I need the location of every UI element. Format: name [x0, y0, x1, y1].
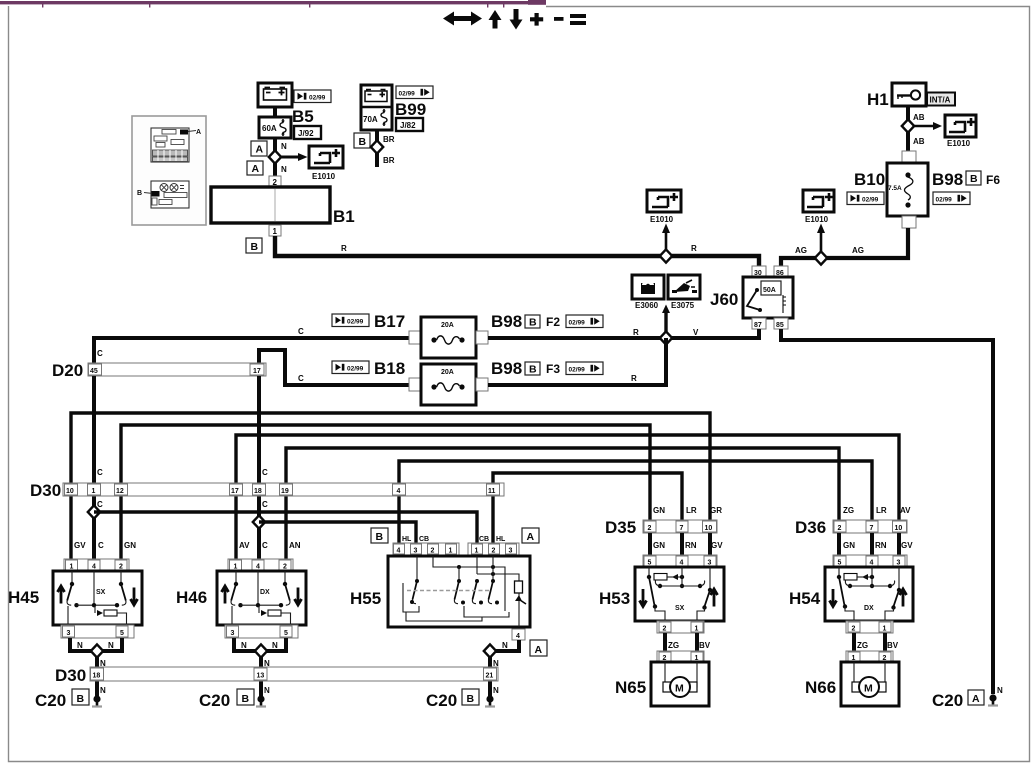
svg-text:B18: B18 — [374, 359, 405, 378]
svg-text:2: 2 — [283, 564, 287, 571]
svg-text:B98: B98 — [491, 312, 522, 331]
svg-text:C: C — [97, 500, 103, 509]
svg-text:12: 12 — [116, 488, 124, 495]
svg-text:D30: D30 — [30, 481, 61, 500]
svg-text:J/82: J/82 — [400, 121, 416, 130]
svg-text:20A: 20A — [441, 322, 454, 329]
svg-text:2: 2 — [431, 548, 435, 555]
svg-text:N: N — [493, 686, 499, 695]
svg-text:17: 17 — [253, 368, 261, 375]
svg-text:3: 3 — [67, 630, 71, 637]
svg-text:5: 5 — [284, 630, 288, 637]
svg-text:N65: N65 — [615, 678, 646, 697]
svg-text:D30: D30 — [55, 666, 86, 685]
svg-text:4: 4 — [256, 564, 260, 571]
svg-text:21: 21 — [486, 673, 494, 680]
svg-text:J60: J60 — [710, 290, 738, 309]
svg-text:13: 13 — [257, 673, 265, 680]
svg-text:LR: LR — [686, 506, 697, 515]
svg-text:N: N — [272, 641, 278, 650]
svg-text:F3: F3 — [546, 362, 560, 376]
svg-text:3: 3 — [231, 630, 235, 637]
svg-text:BV: BV — [699, 641, 711, 650]
svg-text:A: A — [252, 163, 260, 175]
svg-text:2: 2 — [492, 548, 496, 555]
svg-text:R: R — [631, 374, 637, 383]
svg-text:10: 10 — [895, 525, 903, 532]
svg-text:H54: H54 — [789, 589, 821, 608]
svg-text:H53: H53 — [599, 589, 630, 608]
svg-text:B: B — [529, 317, 537, 329]
svg-text:LR: LR — [876, 506, 887, 515]
svg-text:AN: AN — [289, 541, 301, 550]
svg-text:GR: GR — [710, 506, 722, 515]
svg-text:B: B — [376, 531, 384, 543]
svg-text:4: 4 — [516, 633, 520, 640]
svg-text:F6: F6 — [986, 173, 1000, 187]
svg-text:70A: 70A — [363, 115, 378, 124]
svg-text:CB: CB — [479, 536, 489, 543]
svg-text:H1: H1 — [867, 90, 889, 109]
svg-text:INT/A: INT/A — [930, 96, 951, 105]
svg-text:B5: B5 — [292, 107, 314, 126]
svg-text:J/92: J/92 — [298, 129, 314, 138]
svg-text:2: 2 — [838, 525, 842, 532]
svg-text:B: B — [77, 693, 85, 705]
svg-text:C: C — [262, 541, 268, 550]
svg-text:H46: H46 — [176, 588, 207, 607]
svg-text:B17: B17 — [374, 312, 405, 331]
svg-text:4: 4 — [92, 564, 96, 571]
svg-text:B: B — [242, 693, 250, 705]
svg-text:B: B — [137, 190, 142, 197]
svg-text:4: 4 — [397, 488, 401, 495]
svg-text:R: R — [633, 328, 639, 337]
svg-text:1: 1 — [273, 227, 278, 236]
svg-text:E1010: E1010 — [650, 215, 674, 224]
svg-text:AV: AV — [900, 506, 911, 515]
svg-text:AG: AG — [795, 246, 807, 255]
svg-text:1: 1 — [92, 488, 96, 495]
svg-text:C: C — [298, 374, 304, 383]
svg-text:E1010: E1010 — [805, 215, 829, 224]
svg-text:N: N — [77, 641, 83, 650]
svg-text:11: 11 — [488, 488, 496, 495]
svg-text:1: 1 — [449, 548, 453, 555]
svg-text:C20: C20 — [35, 691, 66, 710]
svg-text:B: B — [529, 364, 537, 376]
svg-text:E3060: E3060 — [635, 301, 659, 310]
svg-text:50A: 50A — [763, 287, 776, 294]
svg-text:C20: C20 — [426, 691, 457, 710]
svg-text:C20: C20 — [932, 691, 963, 710]
svg-text:H45: H45 — [8, 588, 39, 607]
svg-text:1: 1 — [475, 548, 479, 555]
svg-text:B98: B98 — [491, 359, 522, 378]
svg-text:N: N — [281, 142, 287, 151]
svg-text:AG: AG — [852, 246, 864, 255]
svg-text:N: N — [264, 686, 270, 695]
svg-text:AB: AB — [913, 137, 925, 146]
svg-text:1: 1 — [234, 564, 238, 571]
svg-text:17: 17 — [231, 488, 239, 495]
svg-text:ZG: ZG — [843, 506, 854, 515]
svg-text:B99: B99 — [395, 100, 426, 119]
svg-text:C20: C20 — [199, 691, 230, 710]
svg-text:C: C — [262, 468, 268, 477]
svg-text:E3075: E3075 — [671, 301, 695, 310]
svg-text:45: 45 — [90, 368, 98, 375]
svg-text:5: 5 — [838, 560, 842, 567]
svg-text:BR: BR — [383, 156, 395, 165]
svg-text:SX: SX — [675, 605, 685, 612]
svg-text:C: C — [298, 327, 304, 336]
svg-text:85: 85 — [776, 322, 784, 329]
svg-text:7.5A: 7.5A — [888, 185, 902, 192]
svg-text:RN: RN — [875, 541, 887, 550]
svg-text:10: 10 — [705, 525, 713, 532]
svg-text:GN: GN — [653, 506, 665, 515]
svg-text:10: 10 — [66, 488, 74, 495]
svg-text:BV: BV — [887, 641, 899, 650]
svg-text:N: N — [502, 641, 508, 650]
svg-text:C: C — [97, 349, 103, 358]
svg-text:E1010: E1010 — [947, 139, 971, 148]
svg-text:B: B — [359, 136, 367, 148]
svg-text:R: R — [691, 244, 697, 253]
svg-text:V: V — [693, 328, 699, 337]
svg-text:5: 5 — [120, 630, 124, 637]
svg-text:A: A — [527, 531, 535, 543]
svg-text:5: 5 — [648, 560, 652, 567]
svg-text:C: C — [98, 541, 104, 550]
svg-text:RN: RN — [685, 541, 697, 550]
svg-text:M: M — [675, 683, 684, 695]
svg-text:GV: GV — [711, 541, 723, 550]
svg-text:18: 18 — [254, 488, 262, 495]
svg-text:CB: CB — [419, 536, 429, 543]
svg-text:4: 4 — [397, 548, 401, 555]
svg-text:B98: B98 — [932, 170, 963, 189]
svg-text:N: N — [100, 686, 106, 695]
svg-text:D20: D20 — [52, 361, 83, 380]
svg-text:GN: GN — [843, 541, 855, 550]
svg-text:E1010: E1010 — [312, 172, 336, 181]
svg-text:AV: AV — [239, 541, 250, 550]
svg-text:GN: GN — [124, 541, 136, 550]
svg-text:3: 3 — [509, 548, 513, 555]
svg-text:3: 3 — [897, 560, 901, 567]
svg-text:N: N — [997, 686, 1003, 695]
svg-text:GN: GN — [653, 541, 665, 550]
svg-text:18: 18 — [93, 673, 101, 680]
svg-text:B: B — [970, 173, 978, 185]
svg-text:HL: HL — [496, 536, 506, 543]
svg-text:H55: H55 — [350, 589, 381, 608]
svg-text:2: 2 — [663, 626, 667, 633]
svg-text:R: R — [341, 244, 347, 253]
svg-text:B1: B1 — [333, 207, 355, 226]
svg-text:DX: DX — [260, 589, 270, 596]
svg-text:D36: D36 — [795, 518, 826, 537]
svg-text:2: 2 — [119, 564, 123, 571]
svg-text:7: 7 — [680, 525, 684, 532]
svg-text:2: 2 — [852, 626, 856, 633]
svg-text:DX: DX — [864, 605, 874, 612]
svg-text:SX: SX — [96, 589, 106, 596]
svg-text:B: B — [251, 241, 259, 253]
svg-text:1: 1 — [883, 626, 887, 633]
svg-text:M: M — [864, 683, 873, 695]
svg-text:4: 4 — [870, 560, 874, 567]
svg-text:B: B — [467, 693, 475, 705]
svg-text:AB: AB — [913, 113, 925, 122]
svg-text:ZG: ZG — [857, 641, 868, 650]
svg-text:N: N — [108, 641, 114, 650]
svg-text:A: A — [196, 129, 201, 136]
svg-text:3: 3 — [708, 560, 712, 567]
svg-text:ZG: ZG — [668, 641, 679, 650]
svg-text:N: N — [241, 641, 247, 650]
svg-text:C: C — [262, 500, 268, 509]
svg-text:GV: GV — [74, 541, 86, 550]
svg-text:4: 4 — [680, 560, 684, 567]
svg-text:19: 19 — [281, 488, 289, 495]
svg-text:3: 3 — [414, 548, 418, 555]
svg-text:B10: B10 — [854, 170, 885, 189]
svg-text:C: C — [97, 468, 103, 477]
svg-text:F2: F2 — [546, 315, 560, 329]
svg-text:1: 1 — [70, 564, 74, 571]
svg-text:20A: 20A — [441, 369, 454, 376]
svg-text:87: 87 — [754, 322, 762, 329]
svg-text:A: A — [256, 144, 264, 156]
svg-text:60A: 60A — [262, 124, 277, 133]
svg-text:D35: D35 — [605, 518, 636, 537]
svg-text:2: 2 — [648, 525, 652, 532]
svg-text:7: 7 — [870, 525, 874, 532]
svg-text:N: N — [281, 165, 287, 174]
svg-text:N66: N66 — [805, 678, 836, 697]
svg-text:HL: HL — [402, 536, 412, 543]
svg-text:1: 1 — [695, 626, 699, 633]
svg-text:BR: BR — [383, 135, 395, 144]
svg-text:A: A — [535, 644, 543, 656]
svg-text:GV: GV — [901, 541, 913, 550]
svg-text:A: A — [972, 693, 980, 705]
